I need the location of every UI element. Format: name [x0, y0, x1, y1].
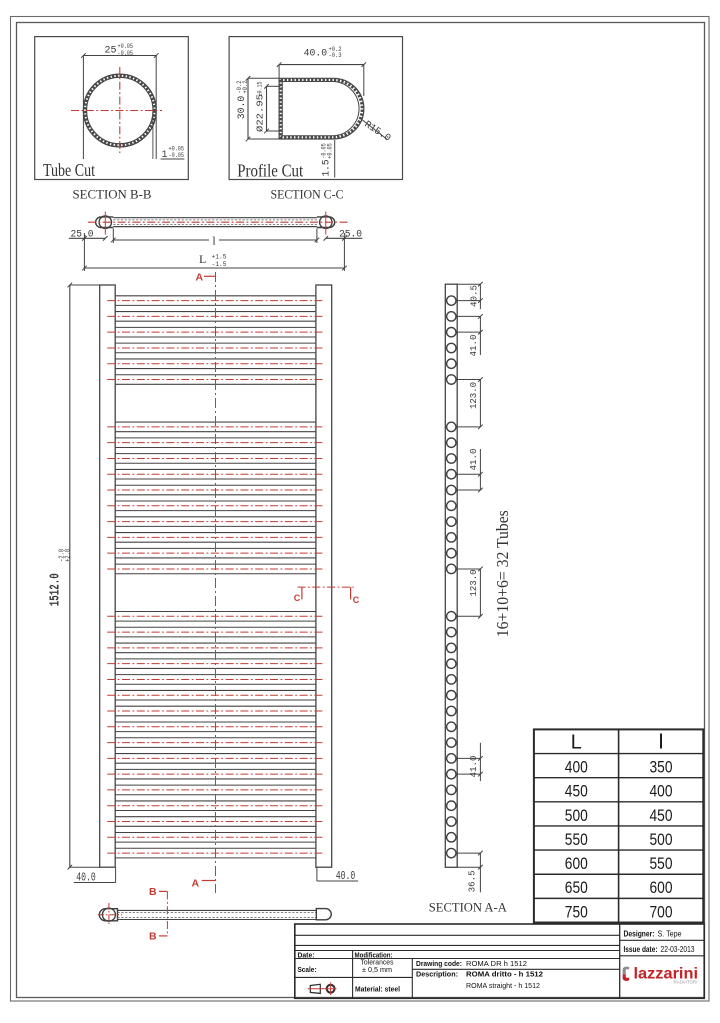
- svg-text:SECTION A-A: SECTION A-A: [429, 900, 508, 915]
- svg-text:Material: steel: Material: steel: [355, 984, 400, 993]
- svg-text:22-03-2013: 22-03-2013: [661, 945, 695, 954]
- svg-text:600: 600: [650, 878, 673, 897]
- svg-text:700: 700: [650, 902, 673, 921]
- svg-text:+0.2: +0.2: [242, 80, 249, 93]
- svg-text:25: 25: [105, 45, 117, 57]
- svg-text:40.0: 40.0: [336, 870, 356, 883]
- svg-text:ROMA straight - h 1512: ROMA straight - h 1512: [466, 981, 540, 990]
- svg-text:500: 500: [650, 830, 673, 849]
- svg-text:400: 400: [565, 758, 588, 777]
- svg-text:B: B: [149, 931, 157, 943]
- svg-text:-0.05: -0.05: [169, 152, 185, 159]
- svg-text:400: 400: [650, 782, 673, 801]
- svg-text:40.5: 40.5: [469, 285, 480, 307]
- svg-text:30.0: 30.0: [236, 96, 248, 120]
- svg-text:450: 450: [565, 782, 588, 801]
- svg-text:Scale:: Scale:: [298, 965, 317, 974]
- svg-text:600: 600: [565, 854, 588, 873]
- svg-text:123.0: 123.0: [468, 382, 479, 409]
- svg-text:41.0: 41.0: [468, 334, 479, 356]
- svg-text:Profile Cut: Profile Cut: [237, 161, 303, 181]
- svg-text:RADIATORI: RADIATORI: [674, 980, 698, 986]
- svg-text:SECTION B-B: SECTION B-B: [73, 187, 152, 202]
- svg-text:C: C: [353, 595, 360, 605]
- svg-text:-0.05: -0.05: [321, 143, 328, 159]
- svg-text:-0.05: -0.05: [118, 50, 134, 57]
- svg-text:B: B: [149, 886, 157, 898]
- svg-text:S. Tepe: S. Tepe: [658, 930, 682, 939]
- svg-text:25.0: 25.0: [339, 228, 362, 240]
- svg-text:Tube Cut: Tube Cut: [43, 160, 95, 180]
- svg-text:36.5: 36.5: [467, 870, 478, 892]
- svg-text:ROMA DR h 1512: ROMA DR h 1512: [466, 959, 527, 968]
- svg-text:Date:: Date:: [298, 950, 315, 959]
- svg-text:l: l: [659, 732, 664, 754]
- svg-text:Description:: Description:: [416, 970, 458, 979]
- svg-text:Drawing code:: Drawing code:: [416, 959, 462, 968]
- svg-text:A: A: [196, 272, 204, 284]
- svg-text:550: 550: [565, 830, 588, 849]
- svg-text:350: 350: [650, 758, 673, 777]
- svg-text:500: 500: [565, 806, 588, 825]
- svg-text:123.0: 123.0: [468, 569, 479, 596]
- svg-text:Ø22.95: Ø22.95: [254, 94, 265, 132]
- svg-text:-0.3: -0.3: [329, 52, 342, 59]
- svg-text:C: C: [294, 593, 301, 603]
- svg-text:SECTION C-C: SECTION C-C: [271, 187, 344, 202]
- svg-text:40.0: 40.0: [76, 871, 96, 884]
- svg-text:550: 550: [650, 854, 673, 873]
- svg-text:Issue date:: Issue date:: [624, 945, 658, 954]
- svg-text:±0.15: ±0.15: [256, 81, 263, 96]
- svg-text:650: 650: [565, 878, 588, 897]
- svg-text:-2.0: -2.0: [58, 549, 66, 562]
- svg-text:1.5: 1.5: [322, 160, 333, 177]
- svg-text:41.0: 41.0: [468, 448, 479, 470]
- svg-text:750: 750: [565, 902, 588, 921]
- svg-text:L: L: [199, 252, 206, 266]
- svg-text:A: A: [192, 877, 200, 889]
- svg-text:40.0: 40.0: [304, 48, 328, 60]
- svg-text:1: 1: [162, 150, 168, 161]
- svg-text:L: L: [571, 732, 582, 754]
- svg-text:1512.0: 1512.0: [49, 573, 64, 606]
- svg-text:+0.05: +0.05: [327, 143, 334, 159]
- svg-text:16+10+6= 32 Tubes: 16+10+6= 32 Tubes: [493, 510, 512, 637]
- svg-text:450: 450: [650, 806, 673, 825]
- svg-text:-1.5: -1.5: [212, 261, 227, 269]
- svg-text:25.0: 25.0: [71, 228, 94, 240]
- svg-text:± 0,5 mm: ± 0,5 mm: [362, 965, 392, 974]
- svg-text:Designer:: Designer:: [624, 930, 655, 939]
- svg-text:ROMA dritto - h 1512: ROMA dritto - h 1512: [466, 970, 543, 979]
- svg-text:41.0: 41.0: [468, 755, 479, 777]
